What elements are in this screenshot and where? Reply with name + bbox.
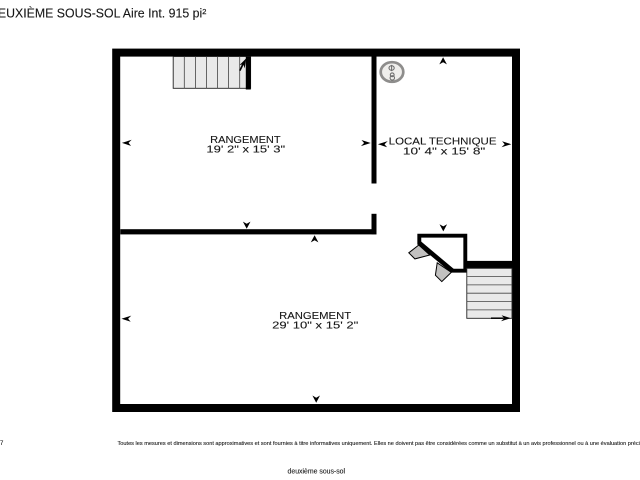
svg-text:DEUXIÈME SOUS-SOL Aire Int. 91: DEUXIÈME SOUS-SOL Aire Int. 915 pi²: [0, 5, 207, 20]
svg-text:10' 4" x 15' 8": 10' 4" x 15' 8": [403, 146, 486, 158]
svg-text:19' 2" x 15' 3": 19' 2" x 15' 3": [206, 144, 285, 156]
svg-text:deuxième sous-sol: deuxième sous-sol: [288, 467, 346, 476]
svg-text:29' 10" x 15' 2": 29' 10" x 15' 2": [272, 319, 358, 331]
svg-text:Toutes les mesures et dimensio: Toutes les mesures et dimensions sont ap…: [118, 441, 640, 447]
